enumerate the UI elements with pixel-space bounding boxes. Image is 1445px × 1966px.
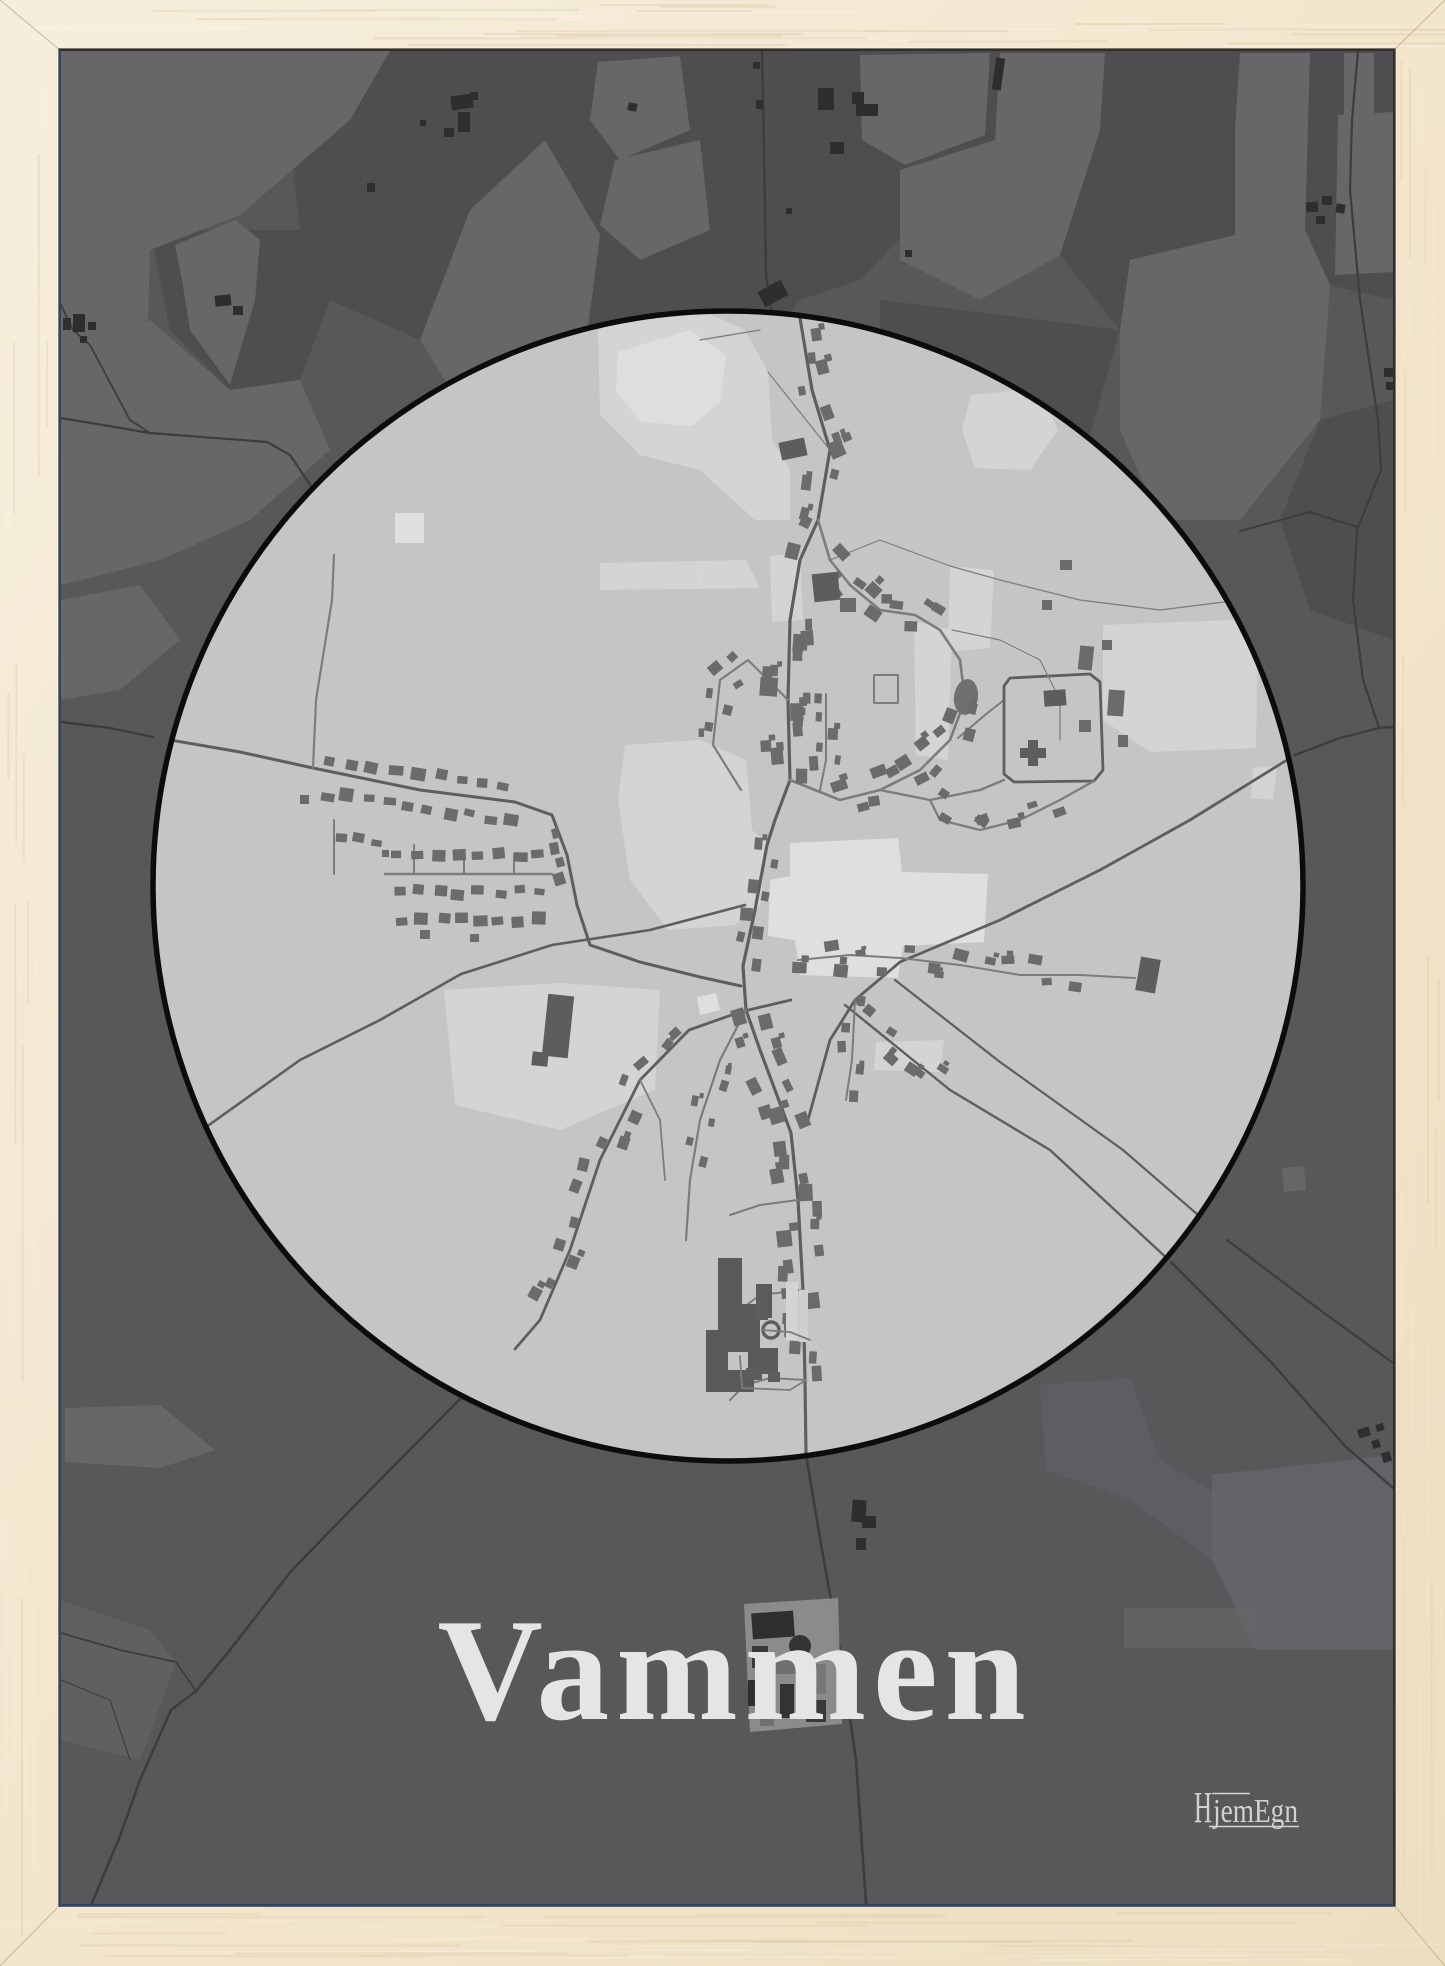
svg-text:H: H: [1194, 1783, 1212, 1832]
svg-text:jemEgn: jemEgn: [1212, 1793, 1298, 1830]
svg-text:Vammen: Vammen: [437, 1589, 1032, 1751]
